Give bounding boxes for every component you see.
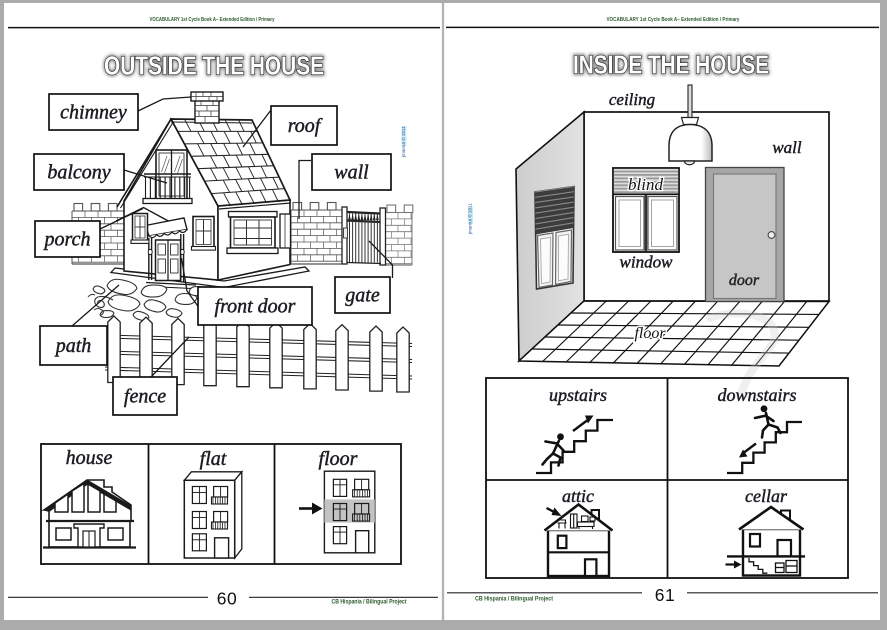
svg-text:floor: floor [319,448,358,470]
svg-text:INSIDE THE HOUSE: INSIDE THE HOUSE [573,50,769,80]
svg-text:downstairs: downstairs [717,385,796,405]
svg-text:wall: wall [334,161,369,183]
svg-text:front door: front door [215,295,296,317]
svg-text:porch: porch [43,228,91,250]
svg-text:window: window [620,253,674,272]
svg-text:60: 60 [217,589,237,609]
svg-text:path: path [54,335,92,357]
svg-text:house: house [66,447,113,469]
svg-text:CB Hispania / Bilingual Projec: CB Hispania / Bilingual Project [475,596,553,603]
svg-text:attic: attic [562,486,594,506]
svg-text:balcony: balcony [47,161,110,183]
svg-text:upstairs: upstairs [549,385,607,405]
svg-text:gate: gate [345,284,380,306]
svg-text:roof: roof [288,115,323,137]
svg-text:flat: flat [200,448,227,470]
svg-text:jmamut © 2011: jmamut © 2011 [467,203,473,235]
svg-text:chimney: chimney [60,101,127,123]
svg-text:wall: wall [772,138,802,157]
svg-text:ceiling: ceiling [609,90,655,109]
svg-text:jmamut © 2011: jmamut © 2011 [400,126,406,158]
svg-text:floor: floor [634,325,666,342]
svg-text:cellar: cellar [745,486,788,506]
svg-text:fence: fence [124,385,166,407]
svg-text:OUTSIDE THE HOUSE: OUTSIDE THE HOUSE [104,51,324,81]
svg-text:VOCABULARY 1st Cycle Book A– E: VOCABULARY 1st Cycle Book A– Extended Ed… [607,17,741,23]
svg-text:blind: blind [628,175,663,194]
svg-text:CB Hispania / Bilingual Projec: CB Hispania / Bilingual Project [332,599,407,606]
svg-text:61: 61 [655,585,675,605]
svg-text:door: door [729,272,760,289]
svg-text:VOCABULARY 1st Cycle Book A– E: VOCABULARY 1st Cycle Book A– Extended Ed… [150,17,276,23]
